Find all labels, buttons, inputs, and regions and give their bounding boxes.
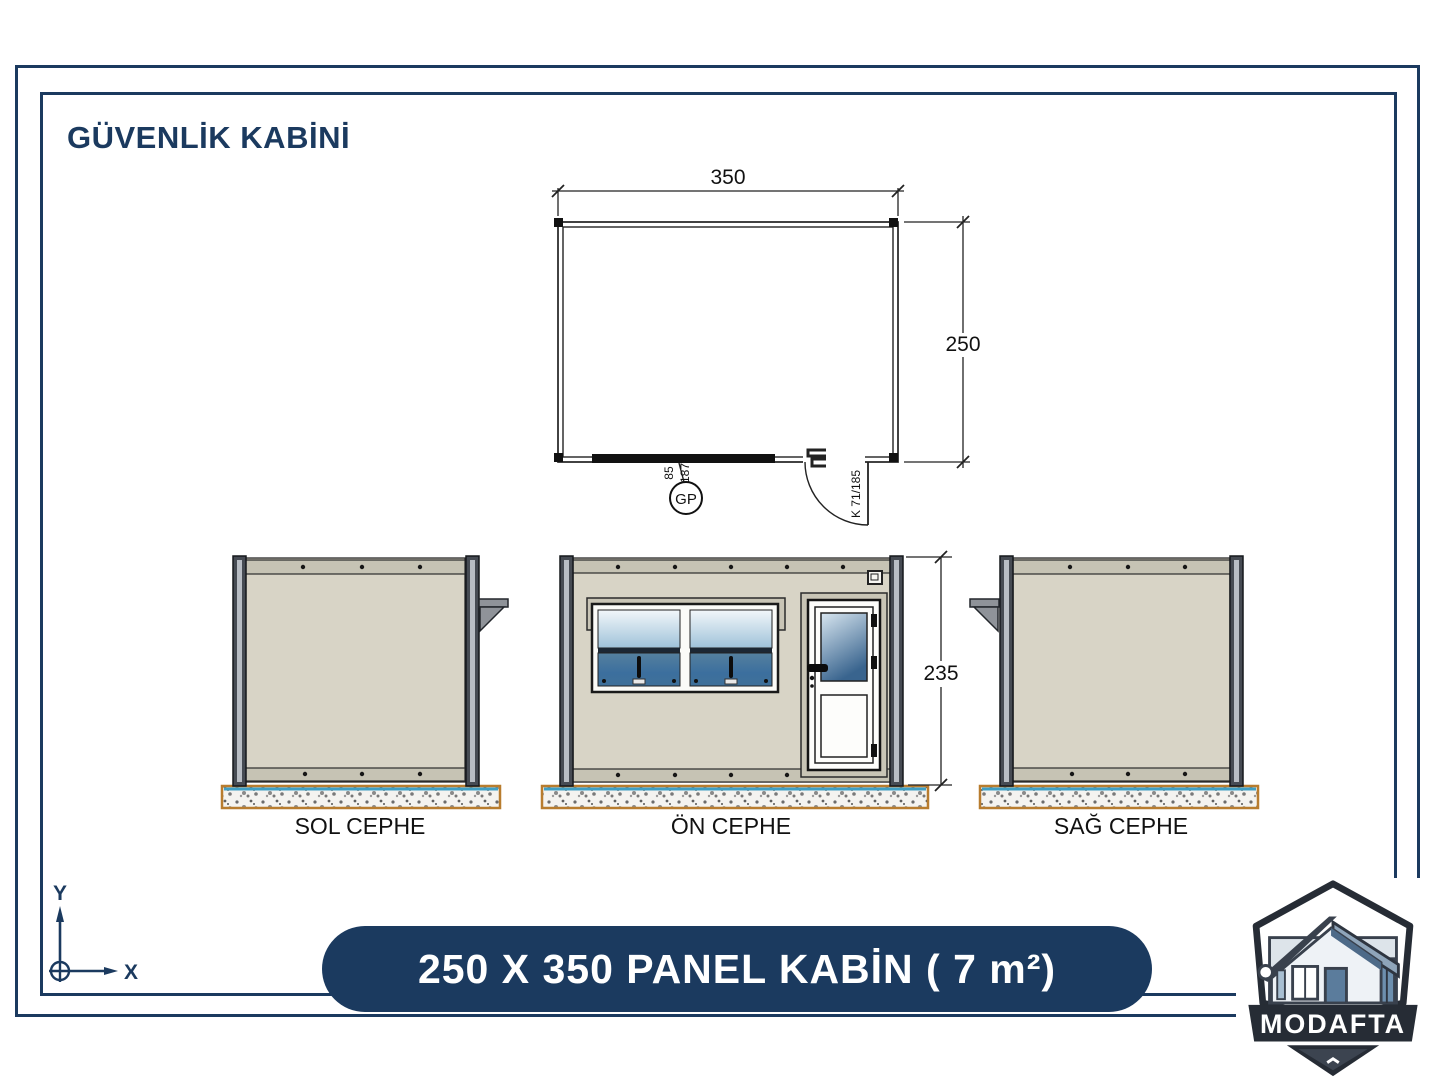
plan-dim-height: 250 [904, 216, 985, 468]
elevation-right-label: SAĞ CEPHE [1054, 813, 1188, 839]
front-height-value: 235 [923, 662, 958, 685]
technical-drawing: K 71/185 GP 85 187 350 [0, 0, 1433, 1080]
gp-height-label: 187 [678, 463, 692, 483]
elevation-front-label: ÖN CEPHE [671, 813, 791, 839]
window-pane-left [598, 610, 680, 686]
plan-dim-width: 350 [552, 166, 904, 216]
product-banner: 250 X 350 PANEL KABİN ( 7 m²) [322, 926, 1152, 1012]
plan-door: K 71/185 [803, 450, 868, 525]
coordinate-axes: Y X [49, 882, 138, 984]
gp-tag-text: GP [675, 491, 697, 508]
brand-logo: MODAFTA [1236, 878, 1430, 1078]
wall-panel [1013, 558, 1230, 782]
page-title: GÜVENLİK KABİNİ [67, 120, 350, 156]
window-handle [729, 656, 733, 678]
window-handle [637, 656, 641, 678]
x-arrow-icon [104, 967, 118, 975]
door-lower-panel [821, 695, 867, 757]
plan-width-value: 350 [710, 166, 745, 189]
elevation-front: 235 ÖN CEPHE [542, 551, 965, 839]
modafta-logo-icon: MODAFTA [1236, 878, 1430, 1078]
plan-view: K 71/185 GP 85 187 350 [552, 166, 985, 525]
front-door [801, 593, 887, 777]
plan-outer-wall [558, 222, 898, 462]
logo-brand-text: MODAFTA [1260, 1009, 1406, 1039]
wall-panel [245, 558, 465, 782]
window-pane-right [690, 610, 772, 686]
door-glass [821, 613, 867, 681]
elevation-right: SAĞ CEPHE [970, 556, 1258, 839]
plan-gp-tag: GP 85 187 [662, 463, 702, 514]
x-axis-label: X [124, 961, 138, 984]
door-handle [807, 664, 828, 672]
roof-canopy [479, 599, 508, 631]
y-arrow-icon [56, 906, 64, 922]
gp-width-label: 85 [662, 466, 676, 480]
door-code-label: K 71/185 [849, 470, 863, 518]
page: GÜVENLİK KABİNİ [0, 0, 1433, 1080]
plan-glass-panel [592, 454, 775, 463]
plan-height-value: 250 [945, 333, 980, 356]
elevation-left-label: SOL CEPHE [295, 813, 426, 839]
y-axis-label: Y [53, 882, 67, 905]
junction-box [868, 571, 882, 584]
front-window [587, 598, 785, 692]
front-dim-height: 235 [906, 551, 965, 791]
elevation-left: SOL CEPHE [222, 556, 508, 839]
roof-canopy [970, 599, 999, 631]
banner-text: 250 X 350 PANEL KABİN ( 7 m²) [418, 946, 1056, 993]
